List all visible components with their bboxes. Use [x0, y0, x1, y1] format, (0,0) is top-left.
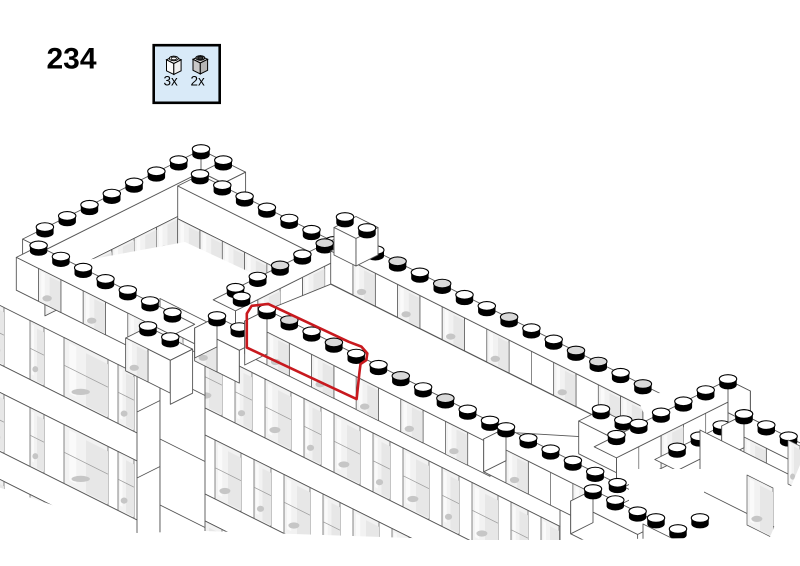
svg-text:2x: 2x: [191, 74, 206, 89]
svg-text:234: 234: [47, 42, 97, 75]
svg-text:3x: 3x: [164, 74, 179, 89]
